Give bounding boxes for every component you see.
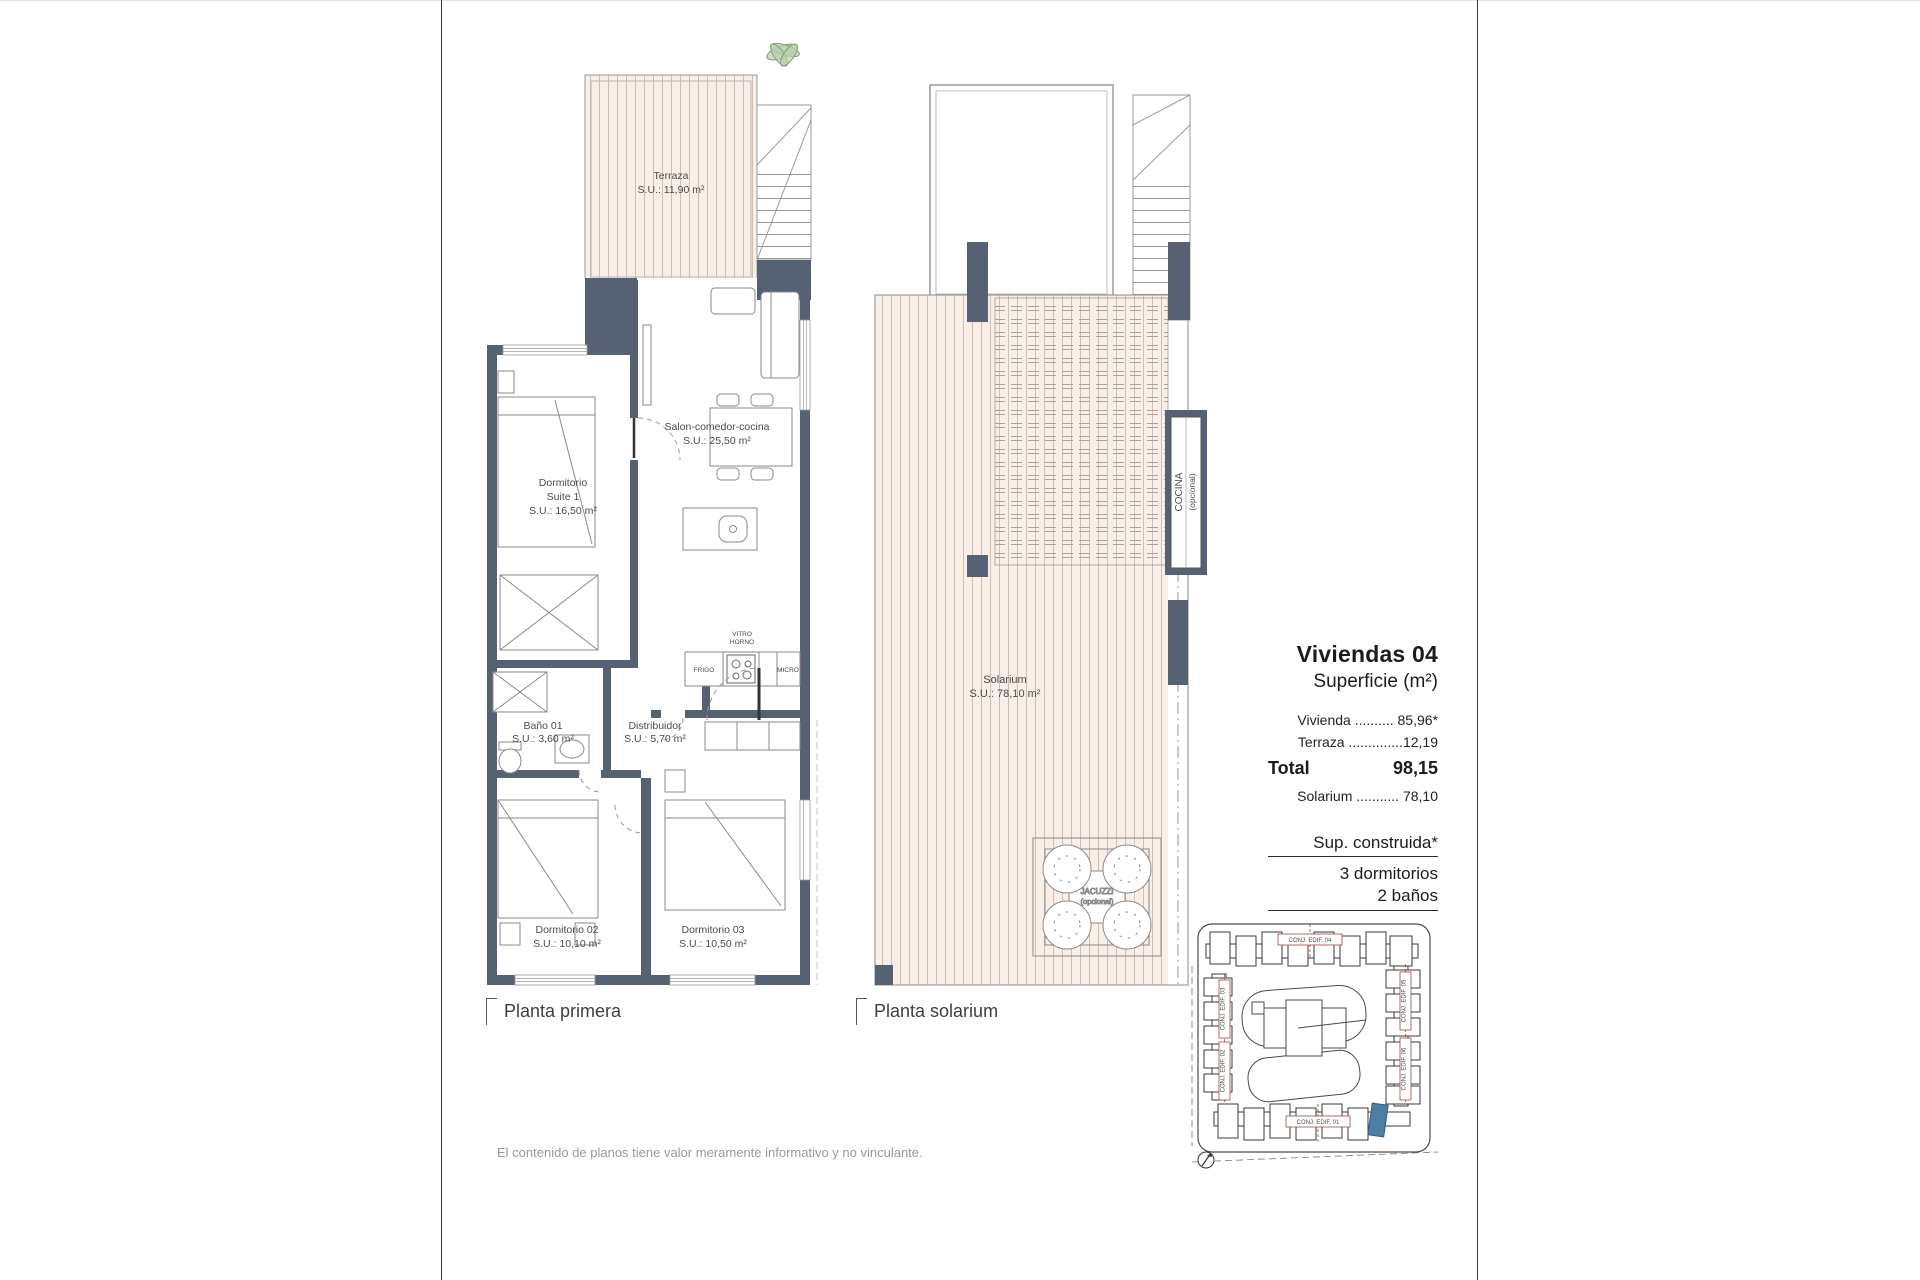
disclaimer-text: El contenido de planos tiene valor meram… bbox=[497, 1145, 923, 1160]
pergola-grid bbox=[995, 298, 1168, 565]
surface-subtitle: Superficie (m²) bbox=[1268, 671, 1438, 693]
area-label: Vivienda bbox=[1297, 712, 1350, 728]
planta-solarium-plan: COCINA (opcional) JACUZZI (opcional) Sol… bbox=[855, 30, 1215, 990]
area-dots: .............. bbox=[1348, 734, 1402, 750]
room-area-bano: S.U.: 3,60 m² bbox=[512, 733, 574, 745]
room-label-solarium: Solarium bbox=[983, 674, 1026, 686]
kitchen-label-vitro: VITRO bbox=[732, 631, 752, 638]
caption-planta-solarium-text: Planta solarium bbox=[874, 998, 998, 1024]
unit-title: Viviendas 04 bbox=[1268, 641, 1438, 668]
jacuzzi-label: JACUZZI bbox=[1081, 887, 1114, 896]
room-label-dorm3: Dormitorio 03 bbox=[681, 924, 744, 936]
area-row-terraza: Terraza ..............12,19 bbox=[1268, 731, 1438, 753]
area-dots: .......... bbox=[1355, 712, 1394, 728]
room-label-dorm2: Dormitorio 02 bbox=[535, 924, 598, 936]
site-plan-map: CONJ. EDIF. 04 CONJ. EDIF. 01 CONJ. EDIF… bbox=[1190, 916, 1442, 1172]
total-value: 98,15 bbox=[1393, 758, 1438, 779]
label-edif-04: CONJ. EDIF. 04 bbox=[1289, 938, 1332, 944]
kitchen-label-horno: HORNO bbox=[730, 639, 754, 646]
page-top-edge bbox=[0, 0, 1920, 1]
stairs bbox=[757, 105, 811, 260]
cocina-sublabel: (opcional) bbox=[1187, 473, 1197, 510]
total-row: Total 98,15 bbox=[1268, 758, 1438, 779]
area-row-vivienda: Vivienda .......... 85,96* bbox=[1268, 709, 1438, 731]
room-label-terraza: Terraza bbox=[653, 170, 688, 182]
room-label-suite1-l2: Suite 1 bbox=[547, 491, 580, 503]
area-value: 85,96* bbox=[1398, 712, 1438, 728]
caption-planta-primera-text: Planta primera bbox=[504, 998, 621, 1024]
caption-planta-primera: Planta primera bbox=[486, 998, 621, 1025]
label-edif-02: CONJ. EDIF. 02 bbox=[1221, 1049, 1227, 1092]
area-value: 12,19 bbox=[1403, 734, 1438, 750]
room-area-suite1: S.U.: 16,50 m² bbox=[529, 505, 597, 517]
label-edif-06: CONJ. EDIF. 06 bbox=[1402, 1047, 1408, 1090]
label-edif-01: CONJ. EDIF. 01 bbox=[1297, 1120, 1340, 1126]
label-edif-03: CONJ. EDIF. 03 bbox=[1221, 987, 1227, 1030]
room-area-dorm3: S.U.: 10,50 m² bbox=[679, 938, 747, 950]
area-row-solarium: Solarium ........... 78,10 bbox=[1268, 785, 1438, 807]
floorplan-sheet: Terraza S.U.: 11,90 m² bbox=[0, 0, 1920, 1280]
construida-block: Sup. construida* 3 dormitorios 2 baños bbox=[1268, 833, 1438, 911]
plant-icon bbox=[765, 41, 801, 69]
room-area-salon: S.U.: 25,50 m² bbox=[683, 435, 751, 447]
room-label-bano: Baño 01 bbox=[523, 720, 562, 732]
room-label-salon: Salon-comedor-cocina bbox=[664, 421, 769, 433]
page-right-border bbox=[1477, 0, 1478, 1280]
planta-primera-plan: Terraza S.U.: 11,90 m² bbox=[455, 30, 835, 990]
caption-corner-mark bbox=[486, 998, 497, 1025]
jacuzzi-sublabel: (opcional) bbox=[1081, 897, 1114, 906]
area-label: Solarium bbox=[1297, 788, 1352, 804]
kitchen-label-frigo: FRIGO bbox=[694, 667, 715, 674]
label-edif-05: CONJ. EDIF. 05 bbox=[1402, 979, 1408, 1022]
total-label: Total bbox=[1268, 758, 1310, 779]
area-dots: ........... bbox=[1356, 788, 1399, 804]
caption-planta-solarium: Planta solarium bbox=[856, 998, 998, 1025]
cocina-label: COCINA bbox=[1174, 472, 1185, 511]
sup-construida: Sup. construida* bbox=[1268, 833, 1438, 857]
room-area-terraza: S.U.: 11,90 m² bbox=[638, 184, 705, 196]
kitchen-label-micro: MICRO bbox=[777, 667, 799, 674]
room-area-distribuidor: S.U.: 5,70 m² bbox=[624, 733, 686, 745]
area-value: 78,10 bbox=[1403, 788, 1438, 804]
caption-corner-mark bbox=[856, 998, 867, 1025]
north-compass-icon bbox=[1198, 1152, 1214, 1168]
area-label: Terraza bbox=[1298, 734, 1345, 750]
cocina-opcional: COCINA (opcional) bbox=[1165, 410, 1207, 575]
baths-count: 2 baños bbox=[1268, 886, 1438, 911]
bedrooms-count: 3 dormitorios bbox=[1268, 864, 1438, 884]
page-left-border bbox=[441, 0, 442, 1280]
room-label-distribuidor: Distribuidor bbox=[628, 720, 682, 732]
stairwell-void bbox=[930, 85, 1113, 300]
room-label-suite1-l1: Dormitorio bbox=[539, 477, 588, 489]
room-area-solarium: S.U.: 78,10 m² bbox=[970, 688, 1041, 700]
room-area-dorm2: S.U.: 10,10 m² bbox=[533, 938, 601, 950]
info-panel: Viviendas 04 Superficie (m²) Vivienda ..… bbox=[1268, 641, 1438, 911]
